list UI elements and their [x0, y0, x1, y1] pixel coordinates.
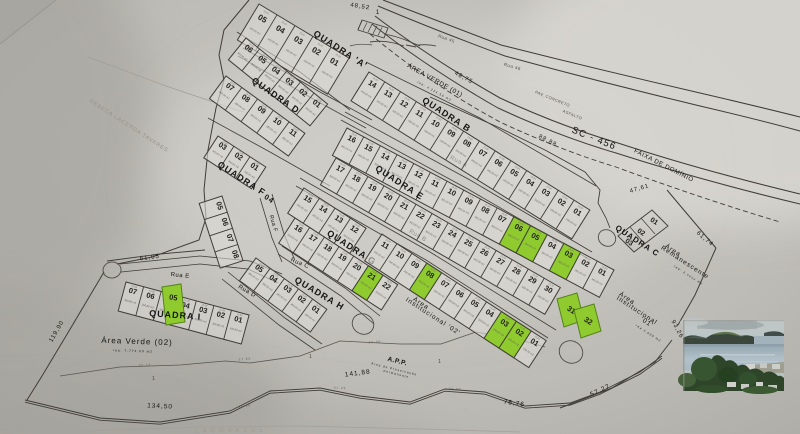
svg-text:28,80: 28,80: [449, 387, 462, 391]
svg-text:L A G O A A Z U L: L A G O A A Z U L: [196, 427, 265, 434]
svg-text:1: 1: [152, 376, 156, 382]
svg-text:1: 1: [438, 359, 442, 365]
svg-text:134,50: 134,50: [147, 402, 173, 410]
svg-text:1: 1: [309, 354, 313, 360]
svg-text:1: 1: [376, 10, 380, 16]
svg-text:05: 05: [169, 292, 179, 302]
svg-text:31,05: 31,05: [334, 386, 347, 391]
